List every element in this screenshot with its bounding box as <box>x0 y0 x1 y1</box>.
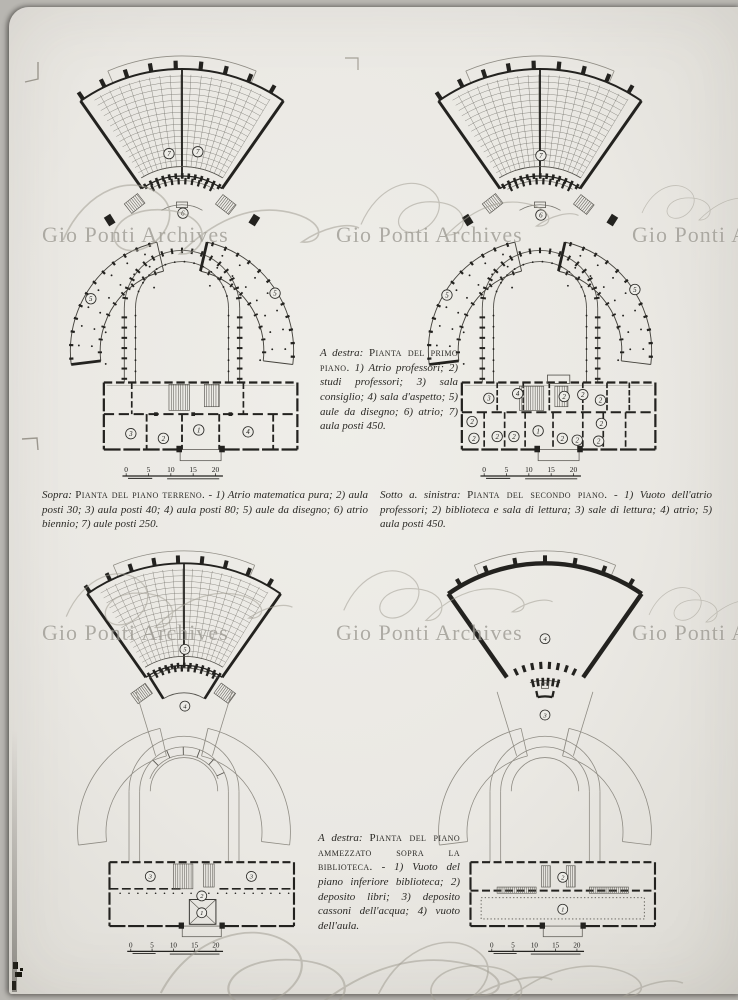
room-label-number: 7 <box>167 150 171 158</box>
scale-number: 15 <box>547 465 555 474</box>
room-label-number: 6 <box>539 211 543 219</box>
room-label-number: 3 <box>486 395 491 403</box>
floor-plan-terreno: 77655321405101520 <box>28 55 336 483</box>
room-label-number: 5 <box>633 286 637 294</box>
auditorium-fan <box>448 555 641 677</box>
atrium-band <box>530 678 560 697</box>
scale-number: 20 <box>212 465 220 474</box>
caption-intro: Sopra: <box>42 489 72 501</box>
room-label-number: 2 <box>561 435 565 443</box>
room-label-number: 5 <box>89 295 93 303</box>
room-label-number: 5 <box>273 290 277 298</box>
watermark-text: Gio Ponti Archives <box>336 222 523 248</box>
caption-intro: A destra: <box>320 347 363 359</box>
scale-bar: 05101520 <box>122 465 222 479</box>
caption-title: Pianta del secondo piano. <box>467 489 607 501</box>
room-label-number: 4 <box>246 428 250 436</box>
room-label-number: 1 <box>536 427 539 435</box>
horseshoe-corridor <box>129 692 239 862</box>
room-label-number: 2 <box>470 418 474 426</box>
photo-edge-shadow <box>12 730 17 992</box>
room-label-number: 2 <box>162 435 166 443</box>
watermark-text: Gio Ponti Archives <box>632 222 738 248</box>
room-label-number: 1 <box>561 907 564 914</box>
caption-intro: Sotto a. sinistra: <box>380 489 461 501</box>
floor-plan-secondo: 54332105101520 <box>34 550 334 958</box>
room-label-number: 3 <box>128 430 133 438</box>
room-label-number: 2 <box>597 438 601 446</box>
horseshoe-corridor <box>463 248 619 383</box>
scale-bar: 05101520 <box>480 465 580 479</box>
scale-number: 10 <box>525 465 533 474</box>
room-label-number: 2 <box>512 433 516 441</box>
scale-number: 20 <box>573 941 581 949</box>
room-label-number: 6 <box>181 210 185 218</box>
scale-bar: 05101520 <box>488 941 584 954</box>
room-label-number: 2 <box>562 393 566 401</box>
room-label-number: 2 <box>495 433 499 441</box>
scale-number: 0 <box>490 941 494 949</box>
room-labels: 543321 <box>145 644 256 917</box>
service-block <box>104 383 298 461</box>
scale-number: 0 <box>482 465 486 474</box>
watermark-text: Gio Ponti Archives <box>336 620 523 646</box>
watermark-text: Gio Ponti Archives <box>42 222 229 248</box>
caption-secondo-piano: Sotto a. sinistra: Pianta del secondo pi… <box>380 488 712 532</box>
scale-number: 20 <box>212 941 220 949</box>
caption-piano-ammezzato: A destra: Pianta del piano ammezzato sop… <box>318 831 460 933</box>
horseshoe-corridor <box>105 248 261 383</box>
scale-bar: 05101520 <box>127 941 223 954</box>
caption-title: Pianta del piano terreno. <box>75 489 205 501</box>
scale-number: 5 <box>505 465 509 474</box>
room-label-number: 7 <box>196 148 200 156</box>
room-label-number: 2 <box>599 397 603 405</box>
scale-number: 20 <box>570 465 578 474</box>
scale-number: 15 <box>189 465 197 474</box>
scale-number: 10 <box>170 941 178 949</box>
scale-number: 0 <box>129 941 133 949</box>
scale-number: 10 <box>531 941 539 949</box>
watermark-text: Gio Ponti Archives <box>632 620 738 646</box>
room-label-number: 2 <box>581 391 585 399</box>
room-label-number: 7 <box>539 152 543 160</box>
watermark-text: Gio Ponti Archives <box>42 620 229 646</box>
atrium-band <box>131 665 236 703</box>
room-label-number: 4 <box>516 390 520 398</box>
room-label-number: 1 <box>197 426 200 434</box>
room-label-number: 3 <box>148 874 153 881</box>
scale-number: 5 <box>150 941 154 949</box>
caption-intro: A destra: <box>318 832 363 844</box>
room-label-number: 5 <box>445 291 449 299</box>
scale-number: 10 <box>167 465 175 474</box>
scale-number: 0 <box>124 465 128 474</box>
caption-piano-terreno: Sopra: Pianta del piano terreno. - 1) At… <box>42 488 368 532</box>
scanned-archive-photo: { "archive": { "watermark_text": "Gio Po… <box>0 0 738 1000</box>
scale-number: 15 <box>552 941 560 949</box>
scale-number: 5 <box>147 465 151 474</box>
room-label-number: 3 <box>542 712 547 719</box>
service-block <box>462 375 656 461</box>
room-label-number: 2 <box>600 420 604 428</box>
room-label-number: 2 <box>472 435 476 443</box>
room-label-number: 1 <box>200 910 203 917</box>
room-label-number: 2 <box>575 437 579 445</box>
room-labels: 765534222222212222 <box>442 150 640 446</box>
scale-number: 15 <box>191 941 199 949</box>
room-labels: 4321 <box>540 634 568 914</box>
atrium-band <box>104 178 260 226</box>
caption-primo-piano: A destra: Pianta del primo piano. 1) Atr… <box>320 346 458 434</box>
scale-number: 5 <box>511 941 515 949</box>
room-label-number: 3 <box>249 874 254 881</box>
